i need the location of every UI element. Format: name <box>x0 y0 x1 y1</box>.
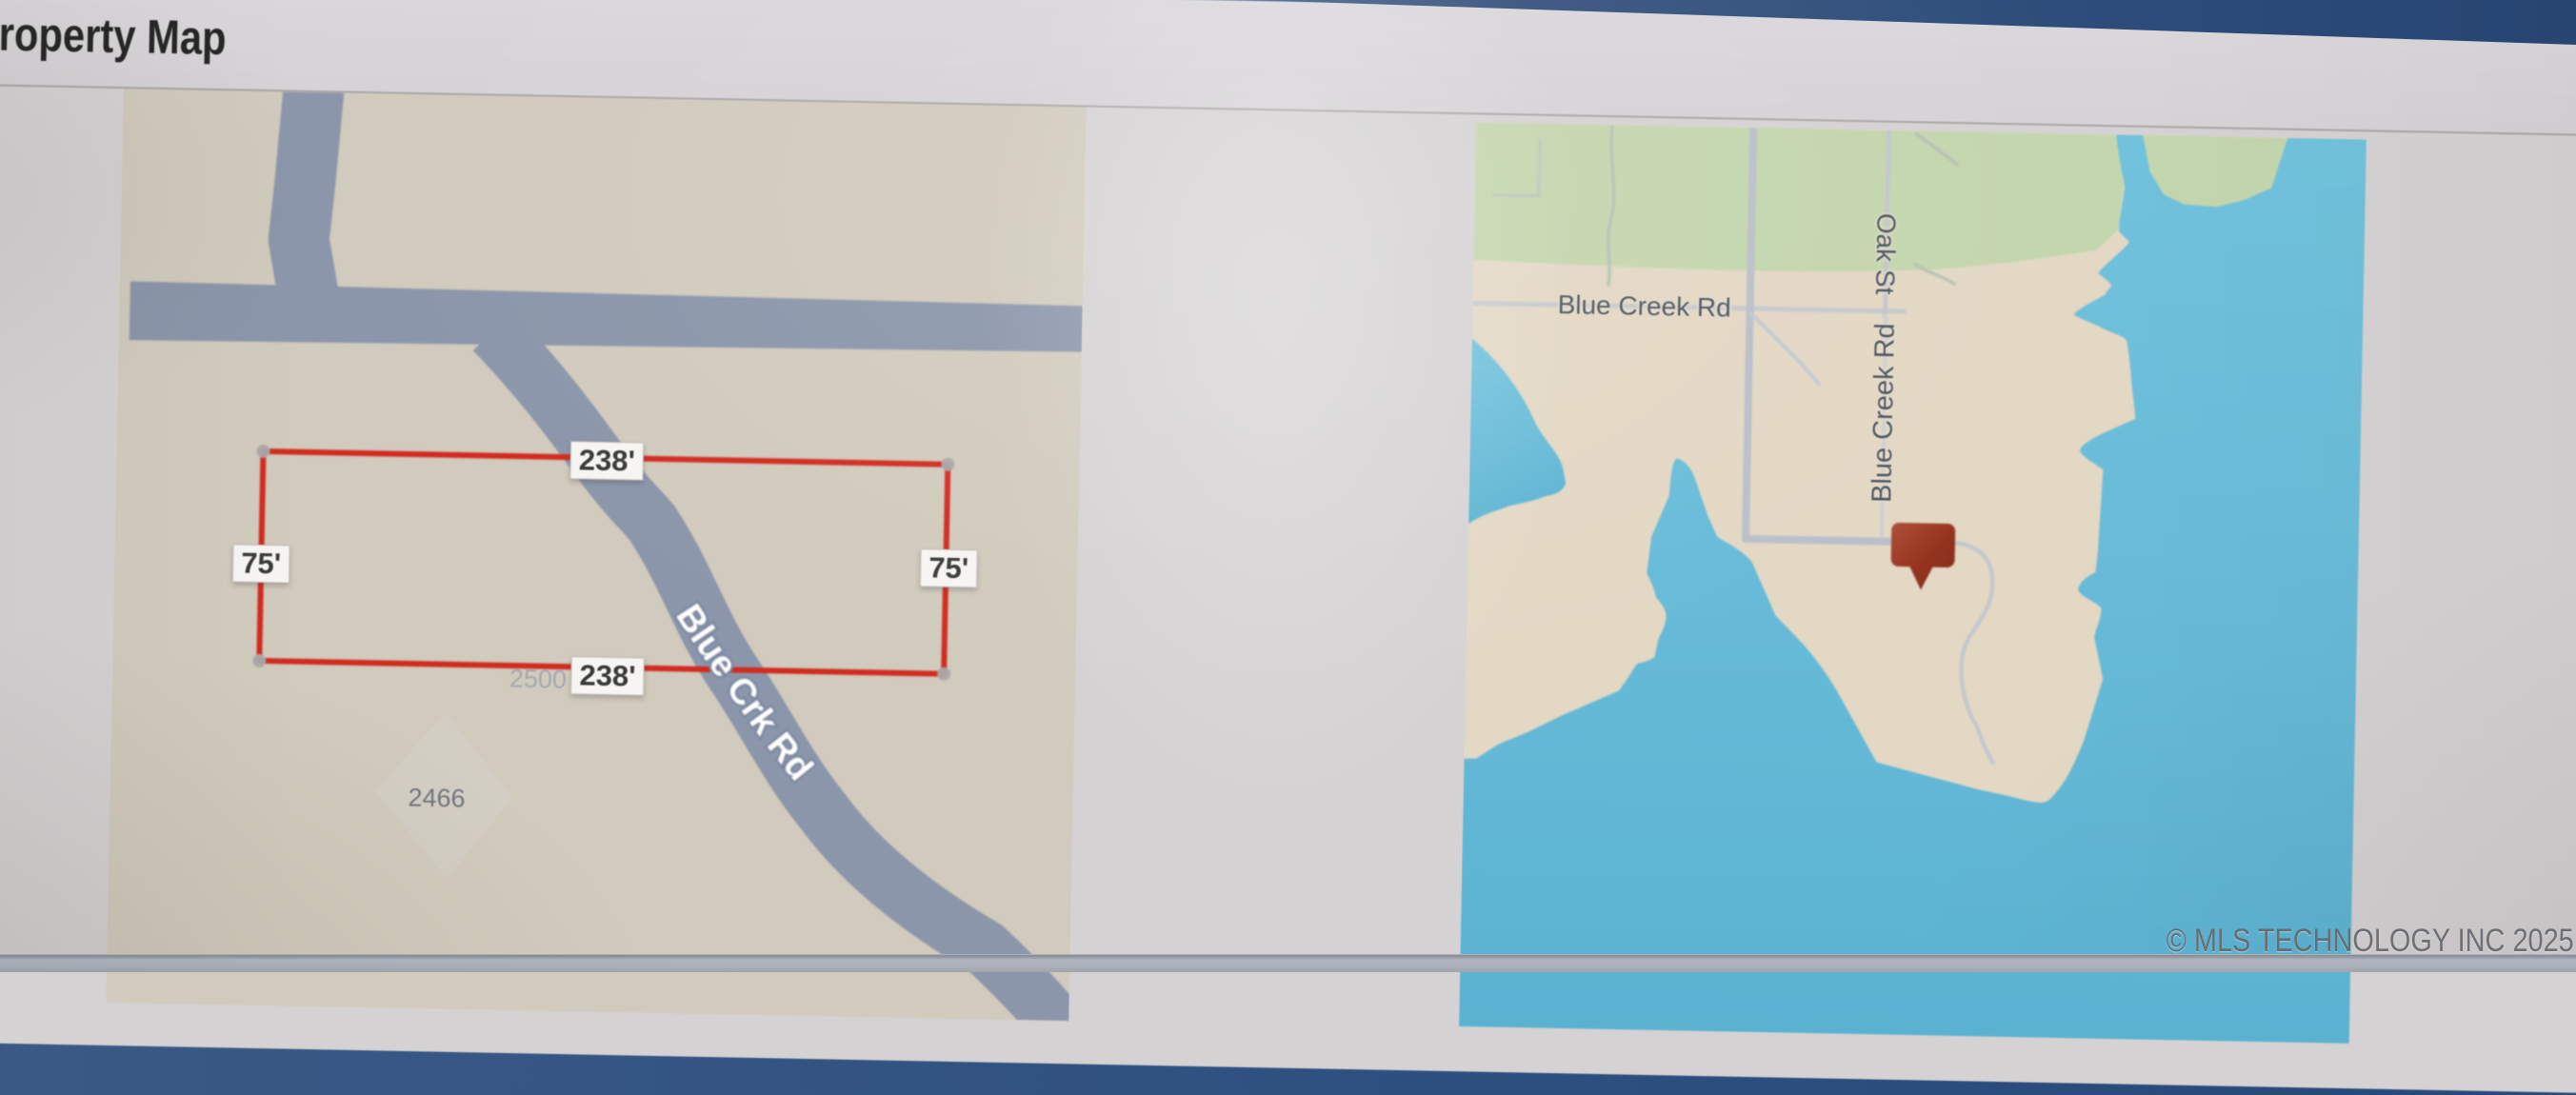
svg-text:Blue Crk Rd: Blue Crk Rd <box>665 597 824 788</box>
